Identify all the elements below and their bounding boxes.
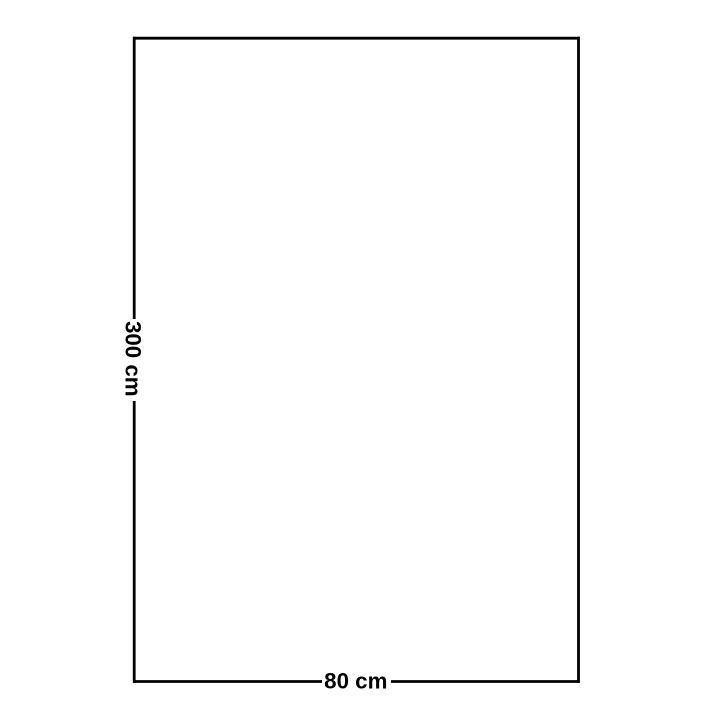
svg-text:80 cm: 80 cm <box>324 668 387 693</box>
svg-text:300 cm: 300 cm <box>121 321 146 397</box>
